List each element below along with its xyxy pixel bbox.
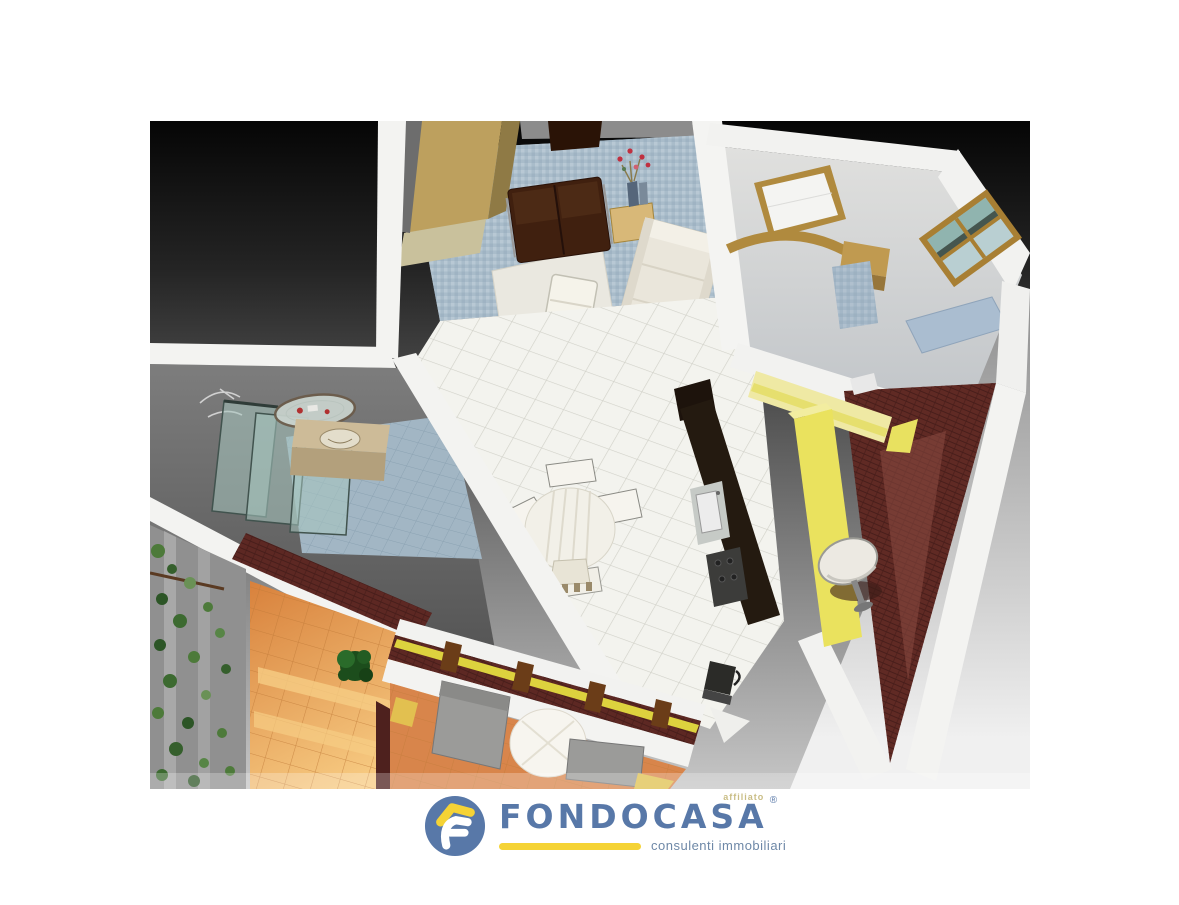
bottom-fade <box>150 773 1030 789</box>
registered-mark: ® <box>770 795 777 806</box>
balcony-ne-wall <box>996 281 1030 393</box>
logo-tagline: consulenti immobiliari <box>651 838 786 853</box>
bed-panel-1 <box>432 681 510 769</box>
page: FONDOCASA® affiliato consulenti immobili… <box>0 0 1179 905</box>
vanity-unit <box>290 419 390 481</box>
brand-row: FONDOCASA® affiliato <box>499 800 786 833</box>
logo-underline-bar <box>499 843 641 850</box>
blue-mosaic-strip <box>832 261 878 329</box>
floorplan-render <box>150 121 1030 789</box>
affiliate-label: affiliato <box>723 793 764 802</box>
fondocasa-logo: FONDOCASA® affiliato consulenti immobili… <box>424 795 786 857</box>
green-plant <box>337 650 373 682</box>
bathroom-north-wall <box>150 343 396 368</box>
doorway-dark <box>548 121 602 151</box>
tagline-row: consulenti immobiliari <box>499 839 786 854</box>
brown-sofa <box>505 176 612 263</box>
ivy-wall <box>150 525 246 789</box>
fondocasa-logo-icon <box>424 795 486 857</box>
logo-text-block: FONDOCASA® affiliato consulenti immobili… <box>499 795 786 854</box>
brand-name: FONDOCASA <box>499 797 768 836</box>
tan-accent-wall <box>406 121 502 233</box>
